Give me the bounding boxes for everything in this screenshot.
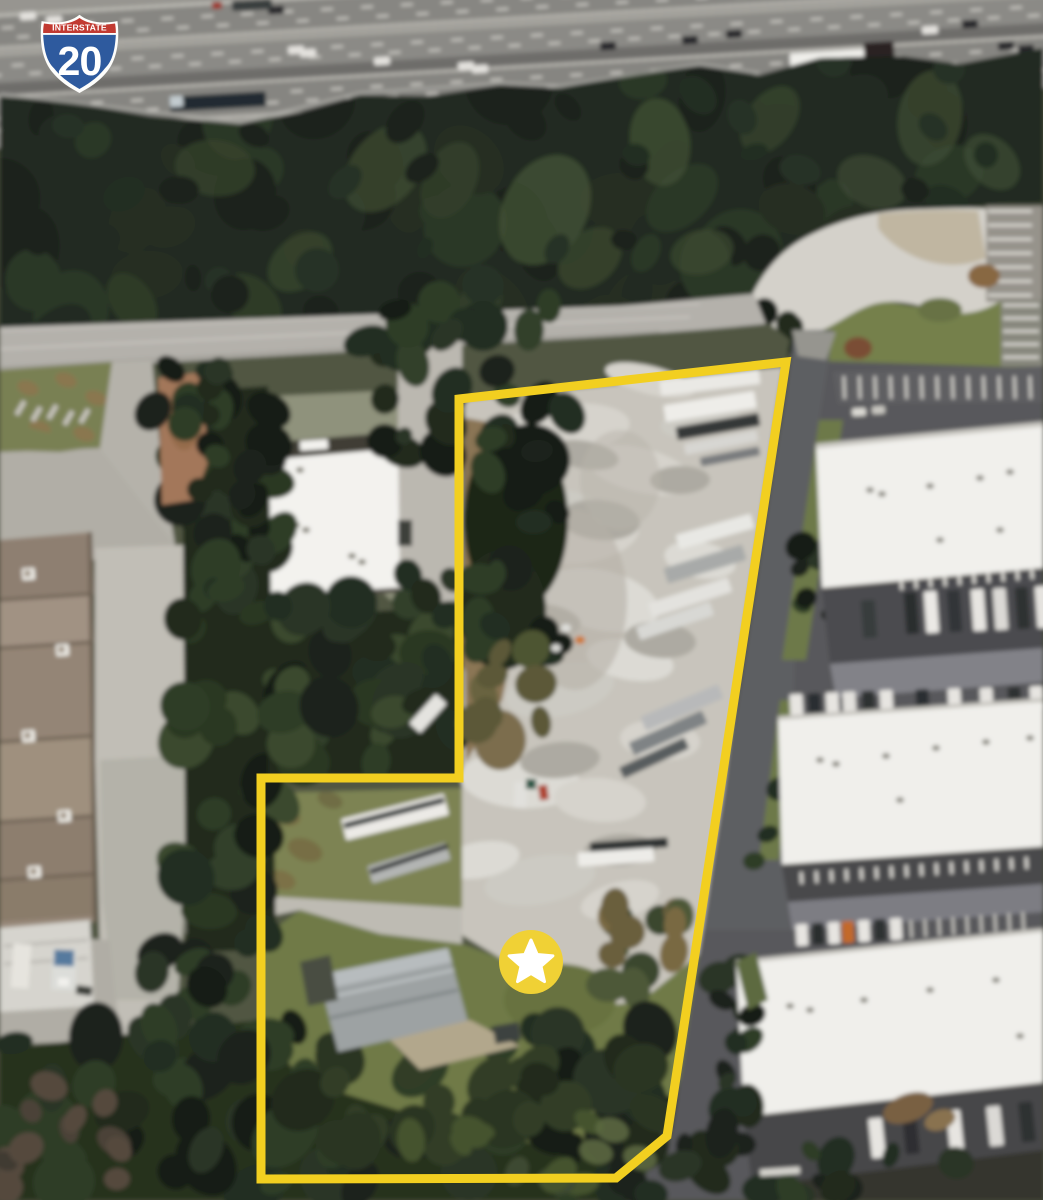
svg-text:INTERSTATE: INTERSTATE [52, 23, 107, 33]
svg-text:20: 20 [57, 38, 101, 84]
